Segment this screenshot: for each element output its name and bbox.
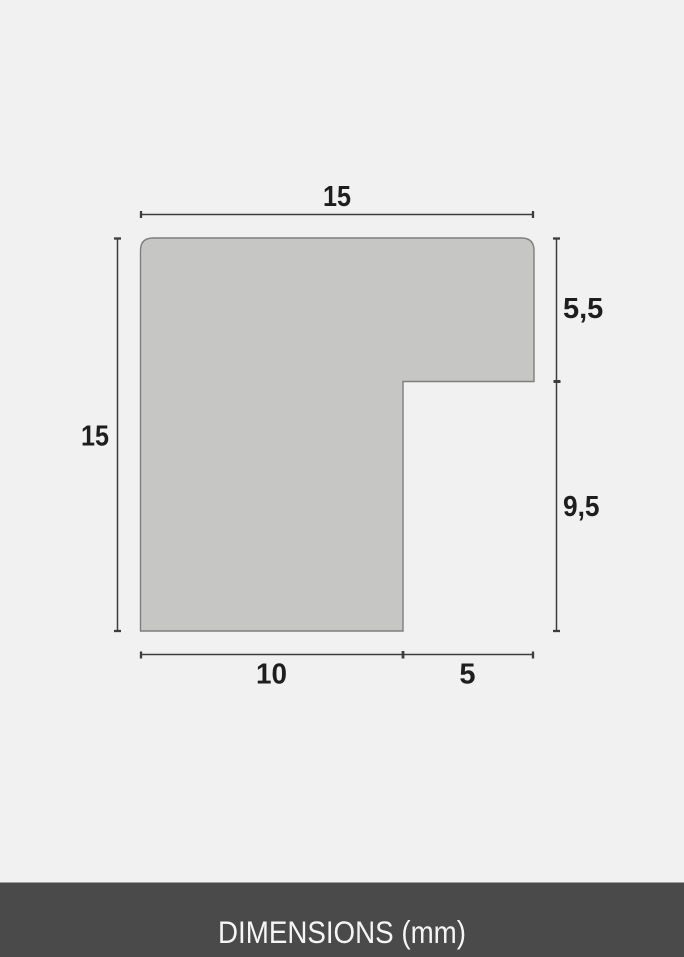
svg-text:5,5: 5,5 xyxy=(563,293,603,325)
svg-text:10: 10 xyxy=(256,659,287,691)
svg-text:9,5: 9,5 xyxy=(563,491,600,523)
svg-text:15: 15 xyxy=(81,421,109,453)
svg-text:15: 15 xyxy=(323,181,351,213)
svg-text:5: 5 xyxy=(459,659,475,691)
svg-text:DIMENSIONS (mm): DIMENSIONS (mm) xyxy=(218,914,466,950)
